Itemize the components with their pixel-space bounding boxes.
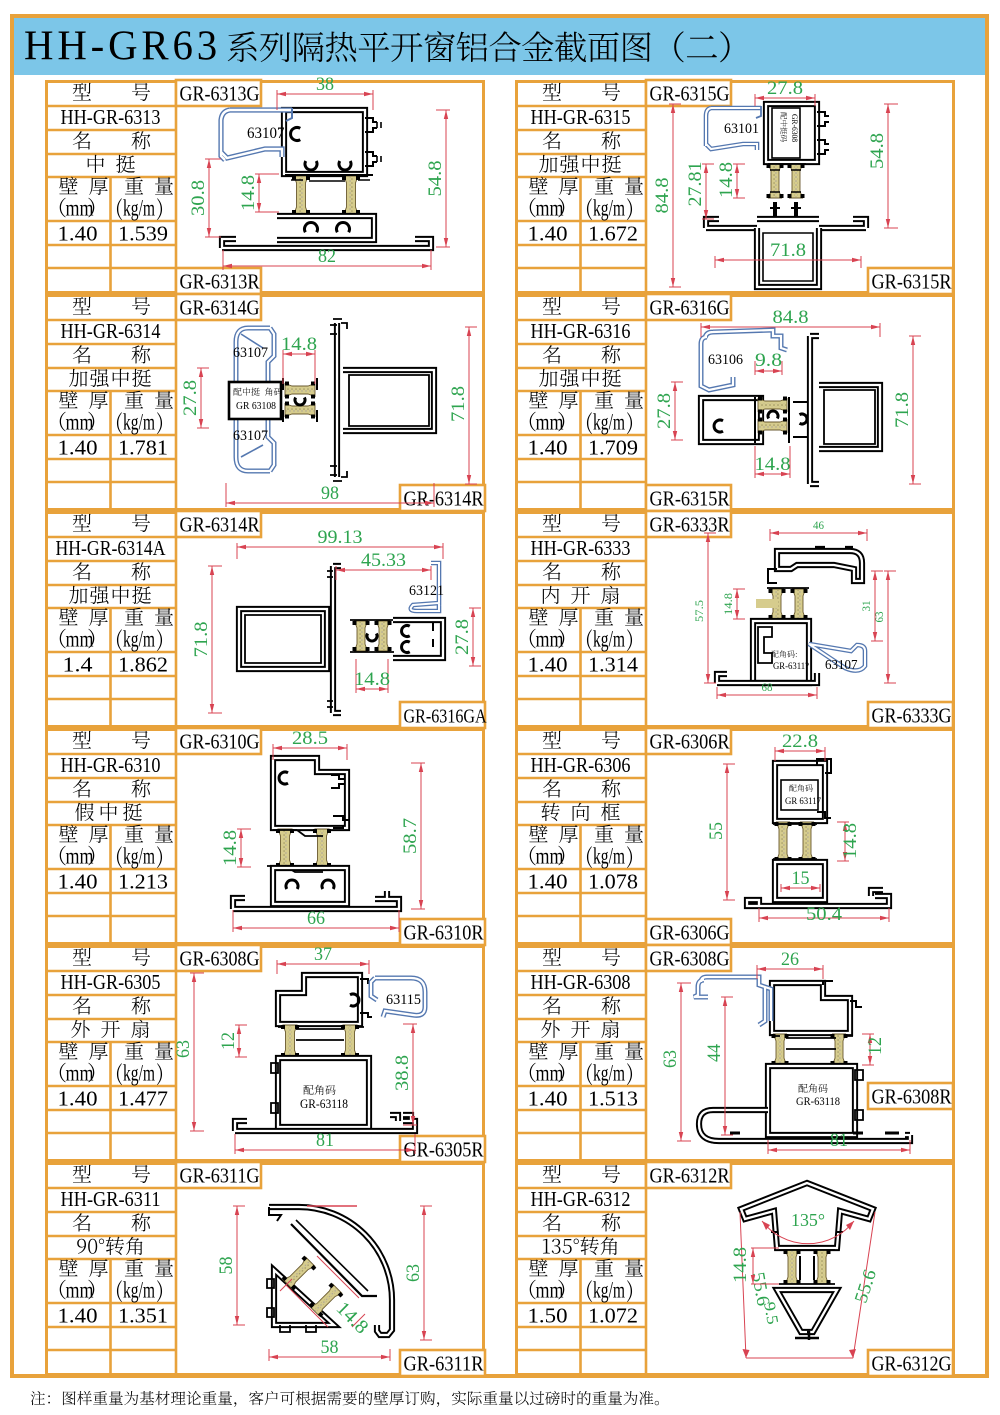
svg-text:HH-GR-6316: HH-GR-6316 [531, 319, 631, 343]
svg-text:54.8: 54.8 [867, 133, 888, 169]
svg-text:14.8: 14.8 [721, 593, 735, 615]
svg-text:98: 98 [321, 483, 339, 504]
svg-text:22.8: 22.8 [782, 731, 818, 752]
svg-text:9.8: 9.8 [755, 350, 782, 371]
svg-text:38.8: 38.8 [392, 1055, 413, 1091]
svg-text:12: 12 [865, 1037, 886, 1055]
svg-text:63107: 63107 [825, 658, 858, 673]
svg-text:37: 37 [314, 944, 332, 965]
svg-text:1.40: 1.40 [528, 653, 568, 677]
svg-text:kg/m: kg/m [123, 410, 155, 435]
svg-text:HH-GR-6313: HH-GR-6313 [61, 105, 161, 129]
svg-text:GR-63118: GR-63118 [300, 1096, 348, 1111]
svg-text:71.8: 71.8 [770, 240, 806, 261]
svg-text:GR-6312R: GR-6312R [650, 1164, 731, 1188]
svg-text:26: 26 [781, 949, 799, 970]
svg-text:14.8: 14.8 [220, 830, 241, 866]
svg-text:54.8: 54.8 [425, 161, 446, 197]
svg-text:58.7: 58.7 [400, 818, 421, 854]
svg-text:GR-6311G: GR-6311G [180, 1164, 260, 1188]
svg-text:55.6: 55.6 [851, 1267, 881, 1306]
svg-text:kg/m: kg/m [123, 844, 155, 869]
svg-text:84.8: 84.8 [773, 307, 809, 328]
svg-text:1.40: 1.40 [528, 870, 568, 894]
svg-text:1.862: 1.862 [118, 653, 168, 677]
svg-text:GR-6308G: GR-6308G [650, 947, 730, 971]
svg-text:GR-6315G: GR-6315G [650, 82, 730, 106]
svg-text:12: 12 [218, 1032, 239, 1050]
svg-text:14.8: 14.8 [840, 823, 861, 859]
svg-text:kg/m: kg/m [593, 1278, 625, 1303]
svg-text:kg/m: kg/m [593, 627, 625, 652]
svg-text:kg/m: kg/m [123, 1061, 155, 1086]
svg-text:GR-6314G: GR-6314G [180, 296, 260, 320]
svg-text:14.8: 14.8 [755, 454, 791, 475]
svg-text:GR-6305R: GR-6305R [404, 1138, 485, 1162]
svg-text:63107: 63107 [233, 428, 268, 444]
svg-text:81: 81 [316, 1130, 334, 1151]
svg-text:GR 63117: GR 63117 [785, 796, 821, 807]
svg-text:HH-GR-6305: HH-GR-6305 [61, 970, 161, 994]
svg-text:GR-6311R: GR-6311R [404, 1352, 485, 1376]
svg-text:kg/m: kg/m [593, 844, 625, 869]
svg-text:31: 31 [859, 600, 873, 611]
svg-text:63121: 63121 [409, 583, 444, 599]
svg-text:63106: 63106 [708, 352, 743, 368]
svg-text:GR-6314R: GR-6314R [404, 487, 485, 511]
svg-text:63: 63 [872, 611, 886, 622]
svg-text:1.40: 1.40 [58, 436, 98, 460]
svg-text:14.8: 14.8 [281, 334, 317, 355]
svg-text:GR-6313R: GR-6313R [180, 270, 261, 294]
svg-text:99.13: 99.13 [318, 527, 363, 548]
svg-text:46: 46 [813, 518, 824, 532]
svg-text:81: 81 [830, 1130, 848, 1151]
svg-text:58: 58 [216, 1257, 237, 1275]
svg-text:63: 63 [173, 1040, 194, 1058]
svg-text:GR-6313G: GR-6313G [180, 82, 260, 106]
svg-text:14.8: 14.8 [238, 175, 259, 211]
svg-text:15: 15 [792, 868, 810, 889]
svg-text:1.513: 1.513 [588, 1087, 638, 1111]
svg-text:50.4: 50.4 [806, 904, 842, 925]
svg-text:HH-GR63: HH-GR63 [24, 23, 221, 70]
svg-text:GR-6333G: GR-6333G [872, 704, 952, 728]
svg-text:30.8: 30.8 [188, 180, 209, 216]
svg-text:55: 55 [706, 822, 727, 840]
svg-text:45.33: 45.33 [361, 550, 406, 571]
svg-text:HH-GR-6314: HH-GR-6314 [61, 319, 161, 343]
svg-text:63: 63 [403, 1264, 424, 1282]
svg-text:HH-GR-6314A: HH-GR-6314A [56, 536, 166, 560]
svg-text:HH-GR-6333: HH-GR-6333 [531, 536, 631, 560]
svg-text:HH-GR-6308: HH-GR-6308 [531, 970, 631, 994]
svg-text:GR-6315R: GR-6315R [872, 270, 953, 294]
svg-text:GR-6316GA: GR-6316GA [404, 706, 488, 728]
svg-text:82: 82 [318, 246, 336, 267]
svg-text:1.40: 1.40 [528, 436, 568, 460]
svg-text:1.314: 1.314 [588, 653, 638, 677]
svg-text:GR-6310R: GR-6310R [404, 921, 485, 945]
svg-text:27.8: 27.8 [767, 78, 803, 99]
svg-text:63107: 63107 [233, 345, 268, 361]
svg-text:1.539: 1.539 [118, 222, 168, 246]
svg-text:63107: 63107 [247, 124, 285, 142]
svg-text:kg/m: kg/m [593, 410, 625, 435]
svg-text:14.8: 14.8 [332, 1298, 372, 1338]
svg-text:kg/m: kg/m [593, 196, 625, 221]
svg-text:HH-GR-6310: HH-GR-6310 [61, 753, 161, 777]
svg-text:1.40: 1.40 [58, 222, 98, 246]
svg-text:GR-6316G: GR-6316G [650, 296, 730, 320]
svg-text:27.8: 27.8 [654, 393, 675, 429]
svg-text:GR-6315R: GR-6315R [650, 487, 731, 511]
svg-text:1.4: 1.4 [63, 653, 93, 677]
svg-text:1.40: 1.40 [58, 1087, 98, 1111]
svg-text:1.078: 1.078 [588, 870, 638, 894]
svg-text:44: 44 [704, 1044, 725, 1062]
svg-text:71.8: 71.8 [892, 392, 913, 428]
svg-text:HH-GR-6306: HH-GR-6306 [531, 753, 631, 777]
svg-text:1.40: 1.40 [58, 870, 98, 894]
svg-text:14.8: 14.8 [354, 669, 390, 690]
svg-text:14.8: 14.8 [716, 162, 737, 198]
svg-text:14.8: 14.8 [730, 1247, 751, 1283]
svg-text:58: 58 [321, 1337, 339, 1358]
svg-text:1.50: 1.50 [528, 1304, 568, 1328]
svg-text:kg/m: kg/m [123, 196, 155, 221]
svg-text:1.672: 1.672 [588, 222, 638, 246]
svg-text:1.40: 1.40 [528, 222, 568, 246]
svg-text:9.5: 9.5 [760, 1301, 782, 1326]
svg-text:HH-GR-6312: HH-GR-6312 [531, 1187, 631, 1211]
svg-text:63115: 63115 [386, 992, 421, 1008]
svg-text:84.8: 84.8 [652, 178, 673, 214]
svg-text:GR-6308R: GR-6308R [872, 1085, 953, 1109]
svg-text:HH-GR-6311: HH-GR-6311 [61, 1187, 161, 1211]
svg-text:GR-6314R: GR-6314R [180, 513, 261, 537]
svg-text:GR 63108: GR 63108 [236, 400, 276, 412]
svg-text:63101: 63101 [724, 121, 759, 137]
svg-text:68: 68 [762, 680, 773, 694]
svg-text:1.351: 1.351 [118, 1304, 168, 1328]
svg-text:HH-GR-6315: HH-GR-6315 [531, 105, 631, 129]
svg-text:1.40: 1.40 [528, 1087, 568, 1111]
svg-text:kg/m: kg/m [123, 627, 155, 652]
svg-text:1.213: 1.213 [118, 870, 168, 894]
svg-text:1.781: 1.781 [118, 436, 168, 460]
svg-text:GR-6310G: GR-6310G [180, 730, 260, 754]
svg-text:66: 66 [307, 908, 325, 929]
svg-text:57.5: 57.5 [692, 600, 706, 622]
svg-text:GR-6306R: GR-6306R [650, 730, 731, 754]
svg-text:GR-6306G: GR-6306G [650, 921, 730, 945]
svg-text:GR-6333R: GR-6333R [650, 513, 731, 537]
svg-text:1.40: 1.40 [58, 1304, 98, 1328]
svg-text:63: 63 [660, 1050, 681, 1068]
svg-text:1.709: 1.709 [588, 436, 638, 460]
svg-text:135°: 135° [791, 1210, 825, 1230]
svg-text:kg/m: kg/m [593, 1061, 625, 1086]
svg-text:1.072: 1.072 [588, 1304, 638, 1328]
svg-text:71.8: 71.8 [191, 622, 212, 658]
svg-text:28.5: 28.5 [292, 728, 328, 749]
svg-text:27.8: 27.8 [452, 619, 473, 655]
svg-text:1.477: 1.477 [118, 1087, 168, 1111]
svg-text:27.8: 27.8 [180, 380, 201, 416]
svg-text:GR-6308: GR-6308 [790, 114, 800, 142]
svg-text:27.81: 27.81 [685, 162, 706, 207]
svg-text:GR-6311?: GR-6311? [773, 661, 809, 672]
svg-text:71.8: 71.8 [448, 386, 469, 422]
svg-text:GR-6312G: GR-6312G [872, 1352, 952, 1376]
svg-text:38: 38 [316, 74, 334, 95]
svg-text:kg/m: kg/m [123, 1278, 155, 1303]
svg-text:GR-6308G: GR-6308G [180, 947, 260, 971]
svg-text:GR-63118: GR-63118 [796, 1094, 840, 1108]
